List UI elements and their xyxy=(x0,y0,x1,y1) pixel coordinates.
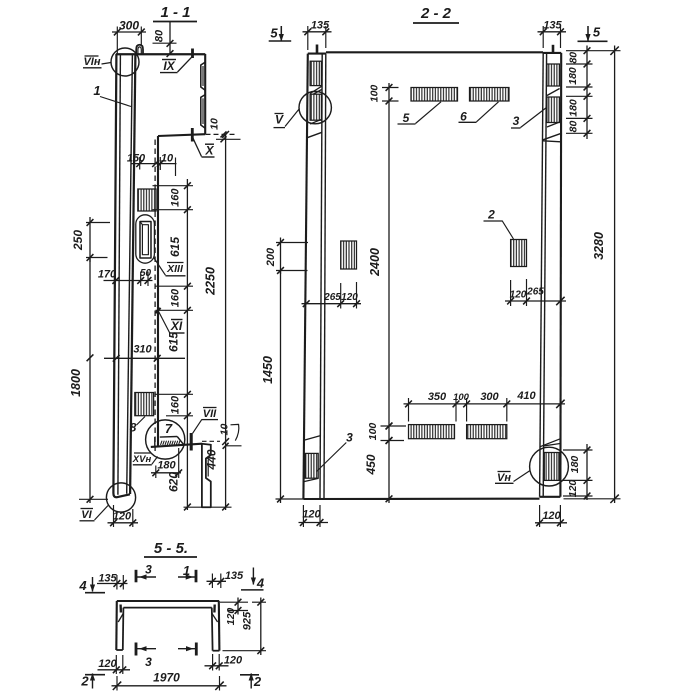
svg-text:180: 180 xyxy=(567,67,579,85)
svg-text:310: 310 xyxy=(133,344,152,356)
svg-text:160: 160 xyxy=(170,188,182,207)
svg-text:3: 3 xyxy=(513,114,520,128)
svg-text:150: 150 xyxy=(127,153,146,165)
svg-text:3280: 3280 xyxy=(592,232,606,260)
svg-text:200: 200 xyxy=(265,247,277,267)
svg-text:10: 10 xyxy=(209,118,221,130)
svg-text:4: 4 xyxy=(78,578,87,593)
svg-text:250: 250 xyxy=(71,230,85,251)
svg-text:300: 300 xyxy=(119,19,139,33)
svg-text:1970: 1970 xyxy=(153,671,180,685)
svg-text:615: 615 xyxy=(167,332,181,352)
svg-text:2250: 2250 xyxy=(204,267,218,296)
svg-text:6: 6 xyxy=(460,110,467,124)
svg-text:120: 120 xyxy=(542,510,561,522)
svg-text:7: 7 xyxy=(165,421,173,436)
svg-text:160: 160 xyxy=(170,395,182,414)
svg-text:2 - 2: 2 - 2 xyxy=(420,5,452,22)
svg-text:170: 170 xyxy=(98,269,117,281)
svg-text:120: 120 xyxy=(98,658,117,670)
svg-text:350: 350 xyxy=(428,391,447,403)
svg-text:80: 80 xyxy=(154,29,166,42)
svg-text:160: 160 xyxy=(170,288,182,307)
svg-text:120: 120 xyxy=(567,480,579,498)
svg-text:50: 50 xyxy=(140,268,152,279)
svg-text:3: 3 xyxy=(145,655,152,669)
svg-text:80: 80 xyxy=(568,121,580,133)
svg-text:2: 2 xyxy=(487,208,495,222)
svg-text:1450: 1450 xyxy=(261,356,275,384)
svg-text:XI: XI xyxy=(170,319,183,333)
svg-text:1800: 1800 xyxy=(69,369,83,397)
svg-text:5: 5 xyxy=(270,26,278,41)
svg-text:VIн: VIн xyxy=(83,56,100,68)
svg-text:120: 120 xyxy=(302,509,321,521)
svg-text:135: 135 xyxy=(98,573,117,585)
svg-text:2: 2 xyxy=(80,674,89,689)
svg-text:2: 2 xyxy=(253,674,262,689)
svg-text:XIII: XIII xyxy=(166,263,184,275)
svg-text:925: 925 xyxy=(242,611,254,630)
svg-text:300: 300 xyxy=(480,391,499,403)
svg-text:X: X xyxy=(204,144,214,158)
svg-text:180: 180 xyxy=(157,460,176,472)
svg-text:3: 3 xyxy=(346,431,353,445)
svg-text:10: 10 xyxy=(218,424,230,436)
svg-text:VII: VII xyxy=(203,408,217,420)
svg-text:180: 180 xyxy=(569,456,581,474)
svg-text:265: 265 xyxy=(526,287,544,298)
svg-text:450: 450 xyxy=(364,454,378,475)
svg-text:120: 120 xyxy=(224,655,243,667)
svg-text:1: 1 xyxy=(93,83,100,98)
svg-text:V: V xyxy=(275,113,284,127)
svg-text:410: 410 xyxy=(516,390,536,402)
svg-text:5: 5 xyxy=(593,25,601,40)
svg-text:135: 135 xyxy=(225,570,244,582)
svg-text:2400: 2400 xyxy=(368,248,382,277)
svg-text:265: 265 xyxy=(323,292,341,303)
svg-text:8: 8 xyxy=(130,421,137,435)
svg-text:Vн: Vн xyxy=(497,472,511,484)
svg-text:VI: VI xyxy=(81,509,92,521)
svg-text:5: 5 xyxy=(403,111,410,125)
svg-text:IX: IX xyxy=(163,59,175,73)
svg-text:10: 10 xyxy=(161,153,174,165)
svg-text:1 - 1: 1 - 1 xyxy=(160,4,190,21)
svg-text:5 - 5.: 5 - 5. xyxy=(154,540,188,557)
svg-text:XVн: XVн xyxy=(132,454,152,465)
svg-text:180: 180 xyxy=(568,99,580,117)
svg-text:100: 100 xyxy=(369,85,381,103)
svg-text:615: 615 xyxy=(168,237,182,257)
svg-text:3: 3 xyxy=(145,563,152,577)
svg-text:100: 100 xyxy=(367,423,379,441)
svg-text:80: 80 xyxy=(568,52,580,64)
svg-text:4: 4 xyxy=(256,576,265,591)
